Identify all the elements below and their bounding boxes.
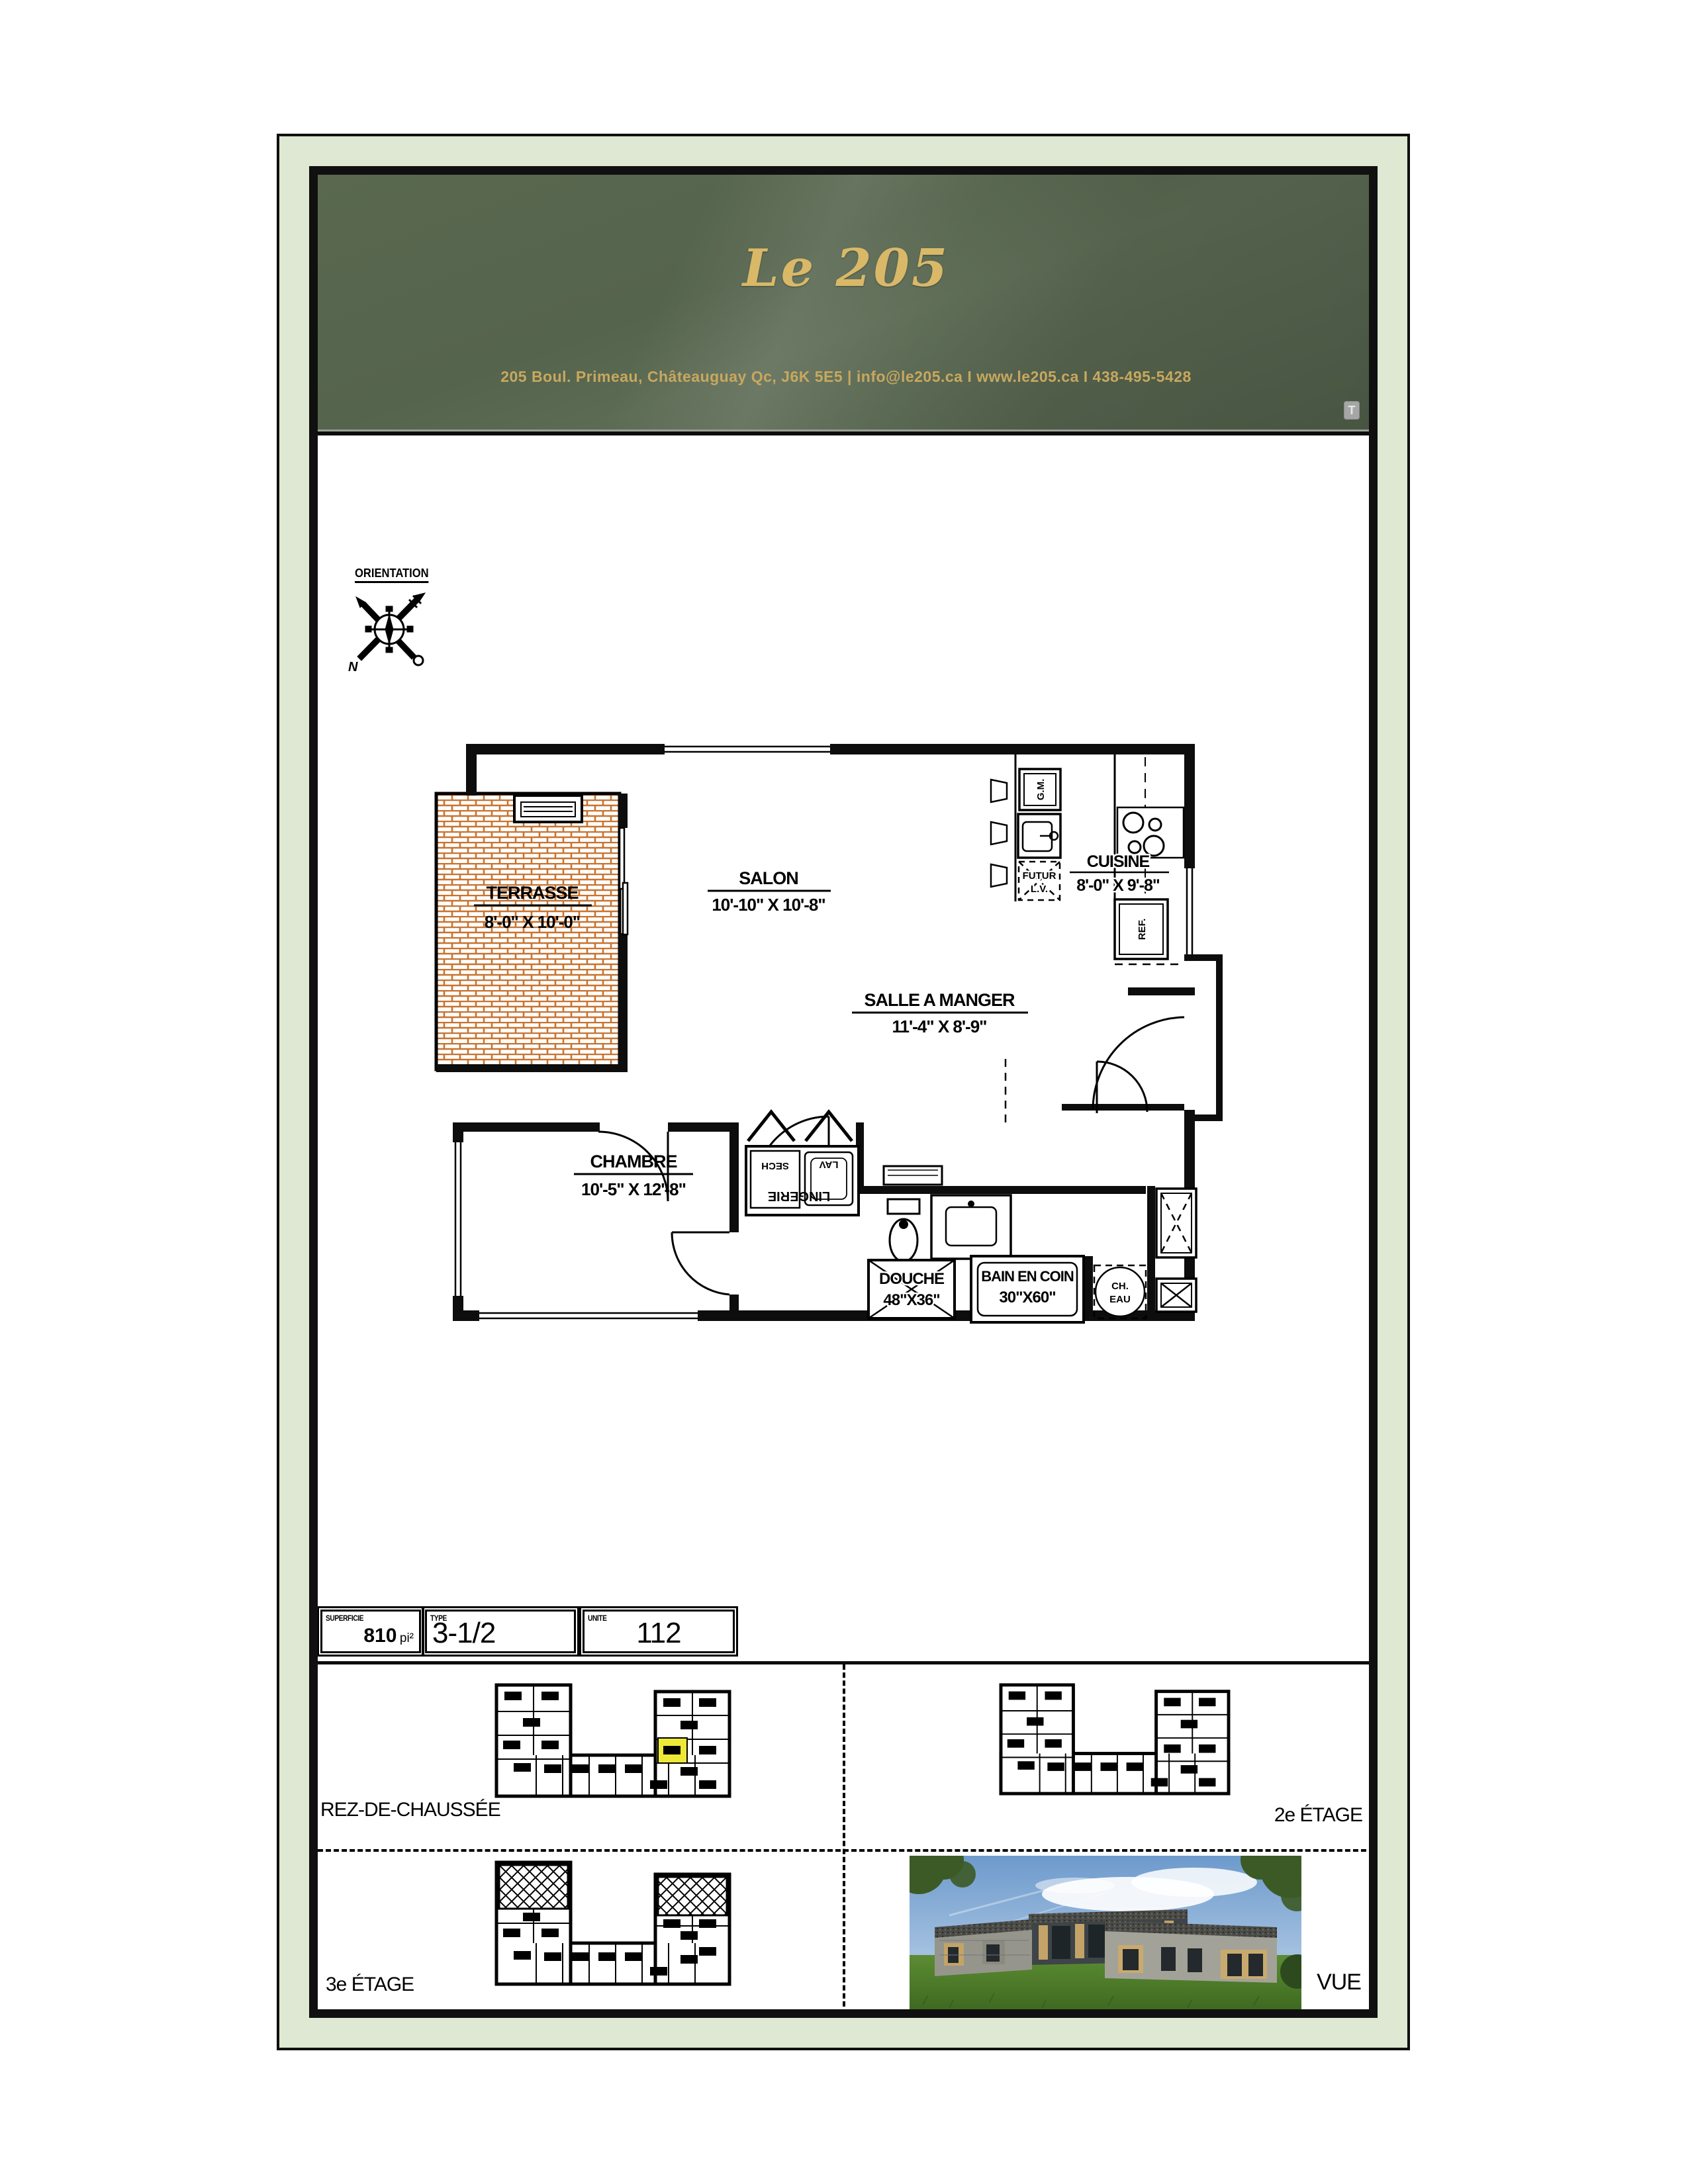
vue-label: VUE	[1317, 1970, 1361, 1995]
orientation-label: ORIENTATION	[355, 567, 429, 583]
futur-lv-label-2: L.V.	[1031, 884, 1048, 895]
text-annotation-icon[interactable]: T	[1344, 401, 1360, 420]
etage3-thumbnail	[494, 1860, 732, 1987]
page-frame: Le 205 205 Boul. Primeau, Châteauguay Qc…	[277, 134, 1410, 2050]
superficie-box: SUPERFICIE 810 pi²	[320, 1610, 421, 1653]
type-value: 3-1/2	[432, 1617, 495, 1650]
cuisine-dim: 8'-0" X 9'-8"	[1076, 876, 1160, 895]
washer-label: LAV	[820, 1159, 839, 1170]
orientation-block: ORIENTATION	[355, 567, 435, 583]
terrasse-dim: 8'-0" X 10'-0"	[485, 912, 580, 932]
superficie-label: SUPERFICIE	[326, 1614, 363, 1623]
fridge-label: REF.	[1137, 919, 1148, 940]
rez-de-chaussee-label: REZ-DE-CHAUSSÉE	[320, 1799, 500, 1821]
shower-label: DOUCHE	[879, 1270, 945, 1288]
page-inner-border: Le 205 205 Boul. Primeau, Châteauguay Qc…	[309, 166, 1378, 2018]
compass-north-letter: N	[348, 660, 358, 674]
ac-unit	[514, 796, 582, 822]
salon-name: SALON	[739, 868, 798, 888]
header-banner: Le 205 205 Boul. Primeau, Châteauguay Qc…	[318, 175, 1374, 432]
vertical-dashed-divider	[843, 1664, 845, 2015]
shower-dim: 48"X36"	[883, 1291, 939, 1309]
chambre-name: CHAMBRE	[590, 1152, 677, 1171]
section-divider	[318, 1661, 1374, 1664]
water-heater-label-2: EAU	[1109, 1294, 1131, 1305]
bathtub-dim: 30"X60"	[999, 1289, 1055, 1306]
water-heater-label-1: CH.	[1111, 1281, 1129, 1292]
address-line: 205 Boul. Primeau, Châteauguay Qc, J6K 5…	[318, 368, 1374, 386]
pantry-label: G.M.	[1035, 779, 1047, 801]
cuisine-name: CUISINE	[1087, 852, 1150, 871]
chambre-dim: 10'-5" X 12'-8"	[581, 1179, 686, 1199]
futur-lv-label-1: FUTUR	[1023, 870, 1056, 882]
etage2-thumbnail	[997, 1682, 1233, 1796]
compass-rose-icon: N	[342, 586, 441, 679]
salle-a-manger-dim: 11'-4" X 8'-9"	[892, 1017, 987, 1036]
unite-value: 112	[585, 1617, 733, 1650]
salon-dim: 10'-10" X 10'-8"	[712, 895, 825, 915]
terrasse-name: TERRASSE	[486, 883, 578, 903]
superficie-unit: pi²	[400, 1631, 414, 1645]
page-content: Le 205 205 Boul. Primeau, Châteauguay Qc…	[318, 175, 1374, 2015]
type-box: TYPE 3-1/2	[425, 1610, 576, 1653]
laundry-closet: SECH LAV LINGERIE	[746, 1112, 859, 1215]
bathtub-label: BAIN EN COIN	[981, 1268, 1074, 1285]
building-photo	[910, 1856, 1301, 2013]
header-divider	[318, 432, 1374, 435]
salle-a-manger-name: SALLE A MANGER	[865, 990, 1015, 1010]
etage3-label: 3e ÉTAGE	[326, 1974, 414, 1996]
dryer-label: SECH	[761, 1160, 789, 1171]
floor-plan-drawing: G.M. FUTUR L.V.	[424, 736, 1225, 1338]
horizontal-dashed-divider	[318, 1849, 1374, 1852]
unite-box: UNITE 112	[583, 1610, 735, 1653]
lingerie-label: LINGERIE	[768, 1189, 830, 1203]
page-title: Le 205	[318, 238, 1374, 298]
rez-de-chaussee-thumbnail	[494, 1682, 732, 1799]
etage2-label: 2e ÉTAGE	[1274, 1804, 1362, 1827]
superficie-value: 810	[363, 1625, 397, 1647]
